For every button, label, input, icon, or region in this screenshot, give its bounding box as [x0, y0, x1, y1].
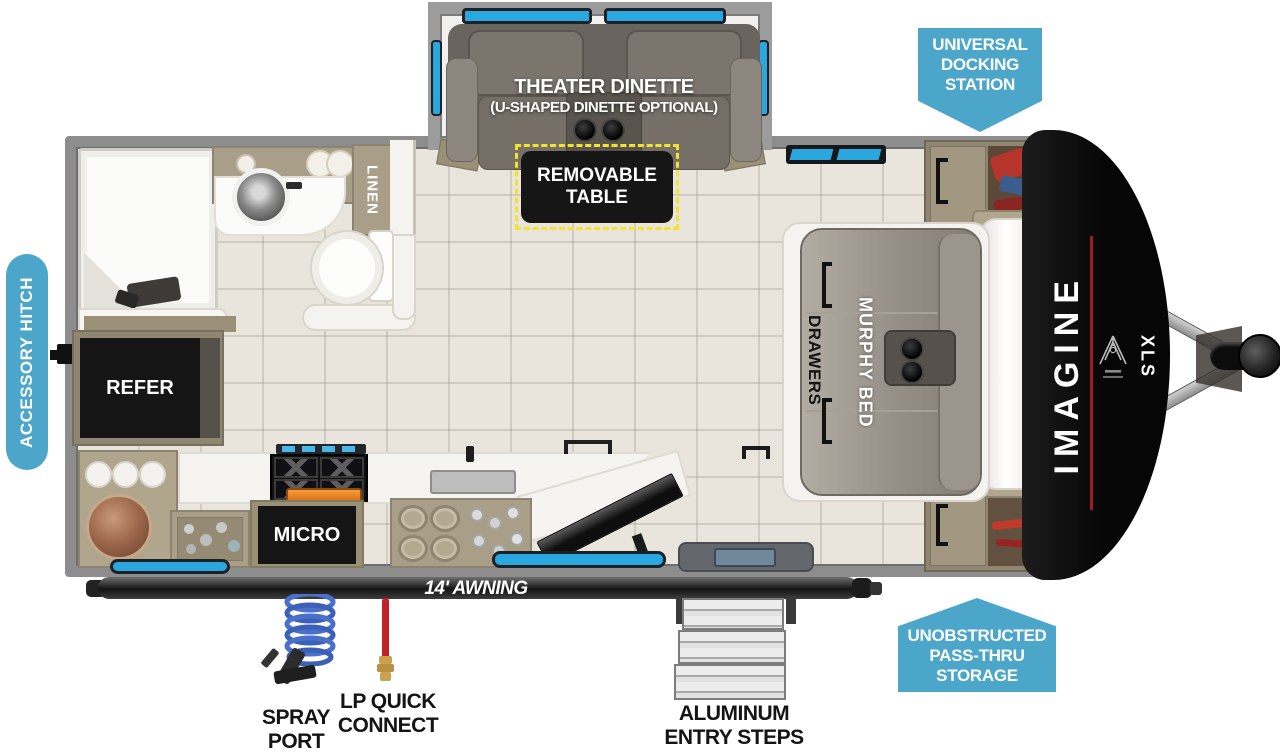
toilet-bowl [310, 230, 384, 306]
micro-box: MICRO [258, 506, 356, 564]
cutlery-4 [228, 540, 240, 552]
xls-badge: XLS [1137, 335, 1158, 379]
ups-line2: PASS-THRU [929, 646, 1024, 666]
kitchen-sink [430, 470, 516, 494]
theater-cupholder-2 [601, 118, 625, 142]
linen-label: LINEN [364, 165, 381, 215]
removable-table-line2: TABLE [566, 187, 628, 209]
grand-design-logo-icon [1096, 330, 1130, 386]
ups-line3: STORAGE [936, 666, 1018, 686]
callout-universal-docking-station: UNIVERSAL DOCKING STATION [918, 28, 1042, 132]
slideout-window-2 [604, 8, 726, 24]
bowl-2 [430, 505, 460, 532]
bathroom-half-wall-vert [392, 234, 416, 320]
wardrobe-bottom-handle-icon [936, 504, 948, 546]
towel-bar-icon [564, 440, 612, 454]
uds-line1: UNIVERSAL [932, 35, 1028, 55]
slideout-window-1 [462, 8, 592, 24]
lp-fitting-icon-3 [380, 672, 391, 681]
theater-dinette-title: THEATER DINETTE [446, 76, 762, 99]
galley-round-basin [86, 494, 152, 560]
galley-egg-1 [85, 461, 112, 488]
murphy-cupholder-2 [900, 360, 924, 384]
imagine-red-stripe [1090, 236, 1093, 510]
linen-closet: LINEN [352, 144, 392, 236]
xls-badge-wrap: XLS [1134, 324, 1160, 390]
galley-egg-2 [112, 461, 139, 488]
murphy-bed-label-wrap: MURPHY BED [848, 285, 882, 440]
callout-unobstructed-storage: UNOBSTRUCTED PASS-THRU STORAGE [898, 598, 1056, 692]
kitchen-faucet-icon [466, 446, 474, 462]
glass-1 [470, 508, 484, 522]
stove-knob-4 [342, 446, 355, 452]
imagine-logo: IMAGINE [1048, 273, 1087, 474]
lp-fitting-icon-2 [377, 664, 394, 672]
uds-line2: DOCKING [941, 55, 1019, 75]
glass-3 [506, 506, 520, 520]
spray-nozzle-body-icon [273, 664, 317, 684]
stove-burner-1 [274, 457, 318, 478]
cutlery-5 [186, 544, 196, 554]
ups-line1: UNOBSTRUCTED [907, 626, 1046, 646]
entry-steps-rail-right [786, 596, 796, 624]
drawers-label: DRAWERS [804, 315, 824, 405]
accessory-hitch-label: ACCESSORY HITCH [17, 277, 37, 448]
imagine-logo-wrap: IMAGINE [1044, 226, 1090, 522]
callout-accessory-hitch: ACCESSORY HITCH [6, 254, 48, 470]
glass-6 [510, 532, 524, 546]
galley-egg-3 [139, 461, 166, 488]
door-side-window [492, 551, 666, 568]
cutlery-3 [216, 522, 227, 533]
cutlery-1 [184, 524, 194, 534]
stove-knob-1 [282, 446, 295, 452]
murphy-drawer-pull-1 [822, 262, 832, 308]
lp-line-icon [382, 598, 389, 658]
bedroom-window-pane-1 [790, 149, 834, 160]
drawers-label-wrap: DRAWERS [798, 310, 830, 410]
bowl-4 [430, 535, 460, 562]
bathroom-sink [232, 168, 290, 226]
cutlery-2 [200, 534, 212, 546]
removable-table-line1: REMOVABLE [537, 165, 657, 187]
stove-burner-2 [320, 457, 364, 478]
bowl-1 [398, 505, 428, 532]
murphy-cupholder-1 [900, 337, 924, 361]
entry-grab-handle-icon [742, 446, 770, 459]
micro-label: MICRO [274, 524, 341, 547]
refer-label: REFER [106, 377, 174, 400]
uds-line3: STATION [945, 75, 1015, 95]
entry-steps-label-line2: ENTRY STEPS [644, 726, 824, 749]
glass-2 [488, 516, 502, 530]
lp-label-line2: CONNECT [328, 714, 448, 737]
stove-knob-2 [302, 446, 315, 452]
entry-step-1 [682, 598, 784, 630]
murphy-bed-label: MURPHY BED [855, 297, 876, 428]
vanity-towel-rolls-2 [326, 150, 354, 178]
entry-step-2 [678, 630, 786, 664]
stove-knob-3 [322, 446, 335, 452]
refer-box: REFER [80, 338, 200, 438]
entry-steps-label-line1: ALUMINUM [654, 702, 814, 725]
awning-label: 14' AWNING [408, 578, 544, 600]
awning-end-nub [870, 582, 882, 595]
awning-end-cap-right [852, 578, 872, 598]
spray-nozzle-tip-icon [261, 648, 280, 668]
bathroom-faucet-icon [286, 182, 302, 189]
bedroom-window-pane-2 [837, 149, 882, 160]
entry-step-3 [674, 664, 786, 700]
lp-label-line1: LP QUICK [328, 690, 448, 713]
lp-fitting-icon-1 [379, 656, 392, 664]
theater-dinette-subtitle: (U-SHAPED DINETTE OPTIONAL) [436, 99, 772, 116]
jack-wheel [1238, 334, 1280, 378]
entry-step-well-tread [714, 548, 776, 567]
wardrobe-top-handle-icon [936, 158, 948, 204]
glass-4 [472, 534, 486, 548]
theater-cupholder-1 [573, 118, 597, 142]
rv-floorplan-diagram: LINEN REFER MICRO [0, 0, 1280, 755]
removable-table: REMOVABLE TABLE [515, 144, 679, 230]
kitchen-window [110, 559, 230, 574]
refer-side-panel [200, 338, 220, 438]
bowl-3 [398, 535, 428, 562]
